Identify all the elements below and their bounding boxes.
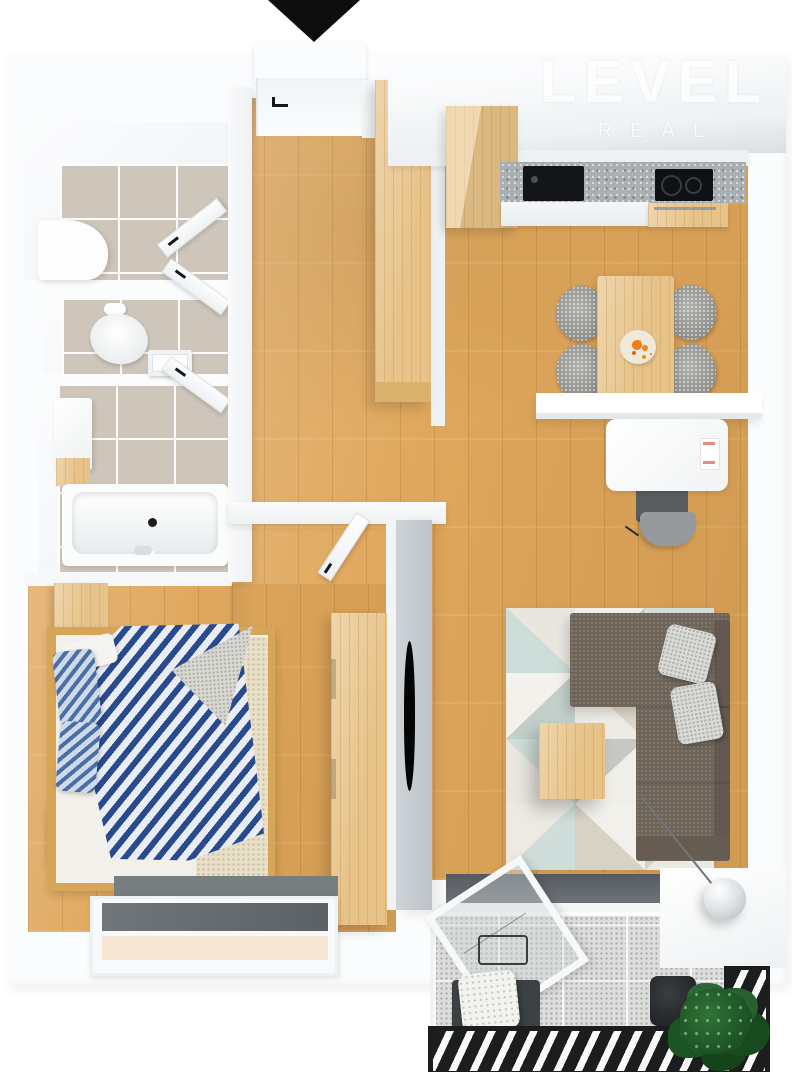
sink-faucet-icon bbox=[531, 176, 538, 183]
partition-shelf bbox=[536, 393, 762, 419]
entrance-door bbox=[256, 78, 368, 136]
floorplan-render: LEVEL REAL bbox=[0, 0, 792, 1072]
cooktop bbox=[655, 169, 713, 201]
entrance-door-handle-icon bbox=[272, 97, 275, 105]
door-handle-icon bbox=[175, 367, 186, 376]
balcony-chair-wire-icon bbox=[478, 935, 528, 965]
sofa-pillow bbox=[669, 680, 724, 745]
fruit-bowl bbox=[620, 330, 656, 364]
vanity-base bbox=[56, 458, 90, 486]
watermark-line1: LEVEL bbox=[522, 52, 786, 112]
desk-chair-seat bbox=[640, 512, 696, 546]
tv-screen bbox=[404, 641, 415, 791]
bathtub-faucet-icon bbox=[134, 546, 152, 555]
burner-icon bbox=[661, 175, 682, 196]
bedroom-window-glass bbox=[102, 903, 328, 931]
desk-notebook bbox=[700, 438, 720, 470]
balcony-chair-cushion bbox=[457, 969, 521, 1033]
entrance-arrow-icon bbox=[268, 0, 360, 42]
door-handle-icon bbox=[175, 269, 186, 278]
door-handle-icon bbox=[168, 236, 179, 246]
fruit-oranges-icon bbox=[632, 340, 642, 350]
notebook-marks-icon bbox=[703, 461, 715, 464]
bathtub-basin bbox=[72, 492, 218, 554]
entry-vestibule bbox=[254, 42, 366, 82]
door-handle-icon bbox=[324, 563, 333, 574]
bed-pillow bbox=[55, 720, 101, 793]
burner-icon bbox=[685, 177, 702, 194]
bathtub-drain-icon bbox=[148, 518, 157, 527]
notebook-marks-icon bbox=[703, 442, 715, 445]
coffee-table bbox=[539, 723, 605, 799]
hall-wardrobe-base bbox=[375, 382, 431, 402]
sofa-seam-icon bbox=[636, 782, 730, 784]
oven-handle-icon bbox=[654, 207, 716, 210]
bedroom-wardrobe bbox=[331, 613, 387, 925]
bedroom-window-sill bbox=[102, 936, 328, 960]
lamp-sphere bbox=[704, 878, 746, 920]
bed-pillow bbox=[52, 648, 103, 727]
kitchen-lower-cabinet bbox=[501, 202, 649, 226]
watermark: LEVEL REAL bbox=[522, 52, 786, 143]
kitchen-sink bbox=[523, 166, 584, 201]
wardrobe-notch-icon bbox=[331, 759, 336, 799]
watermark-line2: REAL bbox=[522, 120, 786, 143]
wardrobe-notch-icon bbox=[331, 659, 336, 699]
oven-unit bbox=[648, 203, 728, 227]
entrance-door-frame bbox=[362, 80, 376, 138]
